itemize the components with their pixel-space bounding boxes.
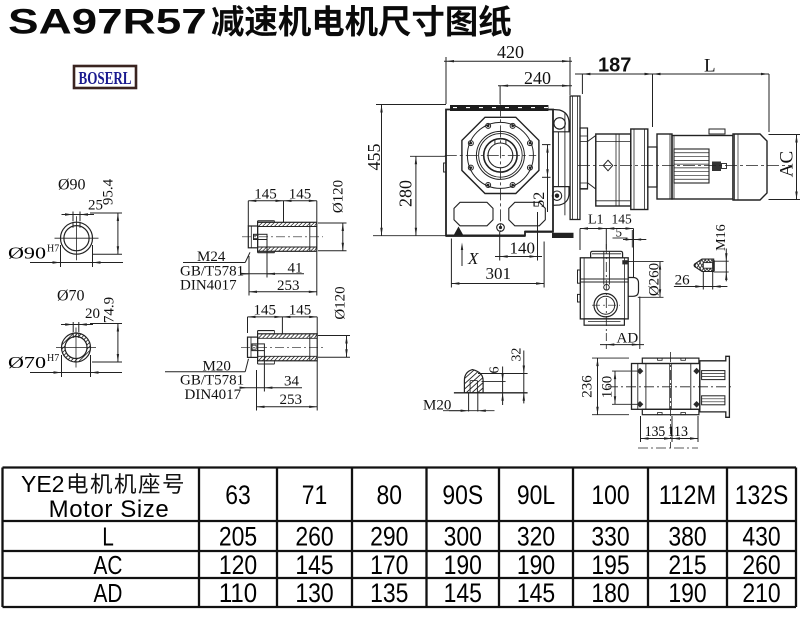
svg-text:AC: AC <box>776 151 797 177</box>
svg-text:145: 145 <box>517 578 555 608</box>
svg-text:260: 260 <box>295 522 333 552</box>
svg-text:Motor Size: Motor Size <box>49 496 170 523</box>
svg-text:26: 26 <box>675 272 691 288</box>
svg-text:Ø70: Ø70 <box>57 288 85 305</box>
svg-text:74.9: 74.9 <box>102 297 118 323</box>
svg-text:280: 280 <box>396 180 416 207</box>
svg-text:120: 120 <box>219 550 257 580</box>
svg-text:63: 63 <box>225 480 251 510</box>
svg-text:253: 253 <box>280 392 303 408</box>
svg-text:330: 330 <box>591 522 629 552</box>
svg-text:190: 190 <box>517 550 555 580</box>
svg-text:130: 130 <box>295 578 333 608</box>
svg-text:112M: 112M <box>659 480 716 510</box>
svg-text:300: 300 <box>444 522 482 552</box>
svg-text:Ø70: Ø70 <box>8 353 46 372</box>
svg-text:71: 71 <box>302 480 328 510</box>
svg-text:20: 20 <box>85 306 100 322</box>
svg-text:145: 145 <box>289 187 312 203</box>
svg-text:YE2: YE2 <box>21 471 64 497</box>
svg-text:Ø90: Ø90 <box>58 177 86 194</box>
svg-text:110: 110 <box>219 578 257 608</box>
svg-text:132S: 132S <box>735 480 789 510</box>
svg-text:Ø120: Ø120 <box>333 286 349 319</box>
svg-text:SA97R57: SA97R57 <box>8 2 207 41</box>
svg-text:L1: L1 <box>588 213 604 228</box>
svg-text:195: 195 <box>591 550 629 580</box>
svg-text:L: L <box>102 522 114 552</box>
svg-text:52: 52 <box>531 192 548 208</box>
svg-text:180: 180 <box>591 578 629 608</box>
svg-text:H7: H7 <box>47 244 59 255</box>
svg-text:145: 145 <box>444 578 482 608</box>
svg-text:6: 6 <box>487 367 502 374</box>
svg-text:210: 210 <box>742 578 780 608</box>
svg-text:160: 160 <box>599 376 615 399</box>
svg-text:80: 80 <box>377 480 403 510</box>
svg-text:320: 320 <box>517 522 555 552</box>
svg-text:32: 32 <box>509 348 524 362</box>
svg-text:AD: AD <box>94 578 123 608</box>
svg-text:145: 145 <box>289 303 312 319</box>
svg-text:113: 113 <box>668 424 689 440</box>
svg-text:100: 100 <box>591 480 629 510</box>
svg-text:205: 205 <box>219 522 257 552</box>
svg-text:DIN4017: DIN4017 <box>180 278 237 294</box>
svg-text:M16: M16 <box>714 224 729 250</box>
svg-text:H7: H7 <box>47 353 59 364</box>
svg-text:140: 140 <box>510 239 536 258</box>
svg-text:145: 145 <box>254 303 277 319</box>
svg-text:236: 236 <box>579 375 595 398</box>
svg-text:187: 187 <box>598 55 631 77</box>
svg-text:301: 301 <box>486 264 512 283</box>
svg-text:90L: 90L <box>517 480 555 510</box>
svg-text:L: L <box>704 56 716 77</box>
svg-text:145: 145 <box>295 550 333 580</box>
svg-text:145: 145 <box>254 187 277 203</box>
svg-text:X: X <box>467 249 479 268</box>
svg-text:95.4: 95.4 <box>101 178 117 205</box>
svg-text:215: 215 <box>668 550 706 580</box>
svg-text:5: 5 <box>616 225 623 240</box>
svg-text:380: 380 <box>668 522 706 552</box>
svg-text:170: 170 <box>370 550 408 580</box>
svg-text:DIN4017: DIN4017 <box>185 387 242 403</box>
svg-text:240: 240 <box>524 68 551 88</box>
svg-text:260: 260 <box>742 550 780 580</box>
svg-text:Ø90: Ø90 <box>8 244 46 263</box>
svg-text:190: 190 <box>668 578 706 608</box>
svg-text:34: 34 <box>284 374 300 390</box>
svg-text:AC: AC <box>94 550 123 580</box>
svg-text:BOSERL: BOSERL <box>79 68 132 88</box>
svg-text:Ø120: Ø120 <box>331 180 347 213</box>
svg-text:190: 190 <box>444 550 482 580</box>
svg-text:430: 430 <box>742 522 780 552</box>
svg-text:290: 290 <box>370 522 408 552</box>
svg-text:135: 135 <box>370 578 408 608</box>
svg-text:420: 420 <box>497 42 524 62</box>
svg-text:90S: 90S <box>442 480 483 510</box>
